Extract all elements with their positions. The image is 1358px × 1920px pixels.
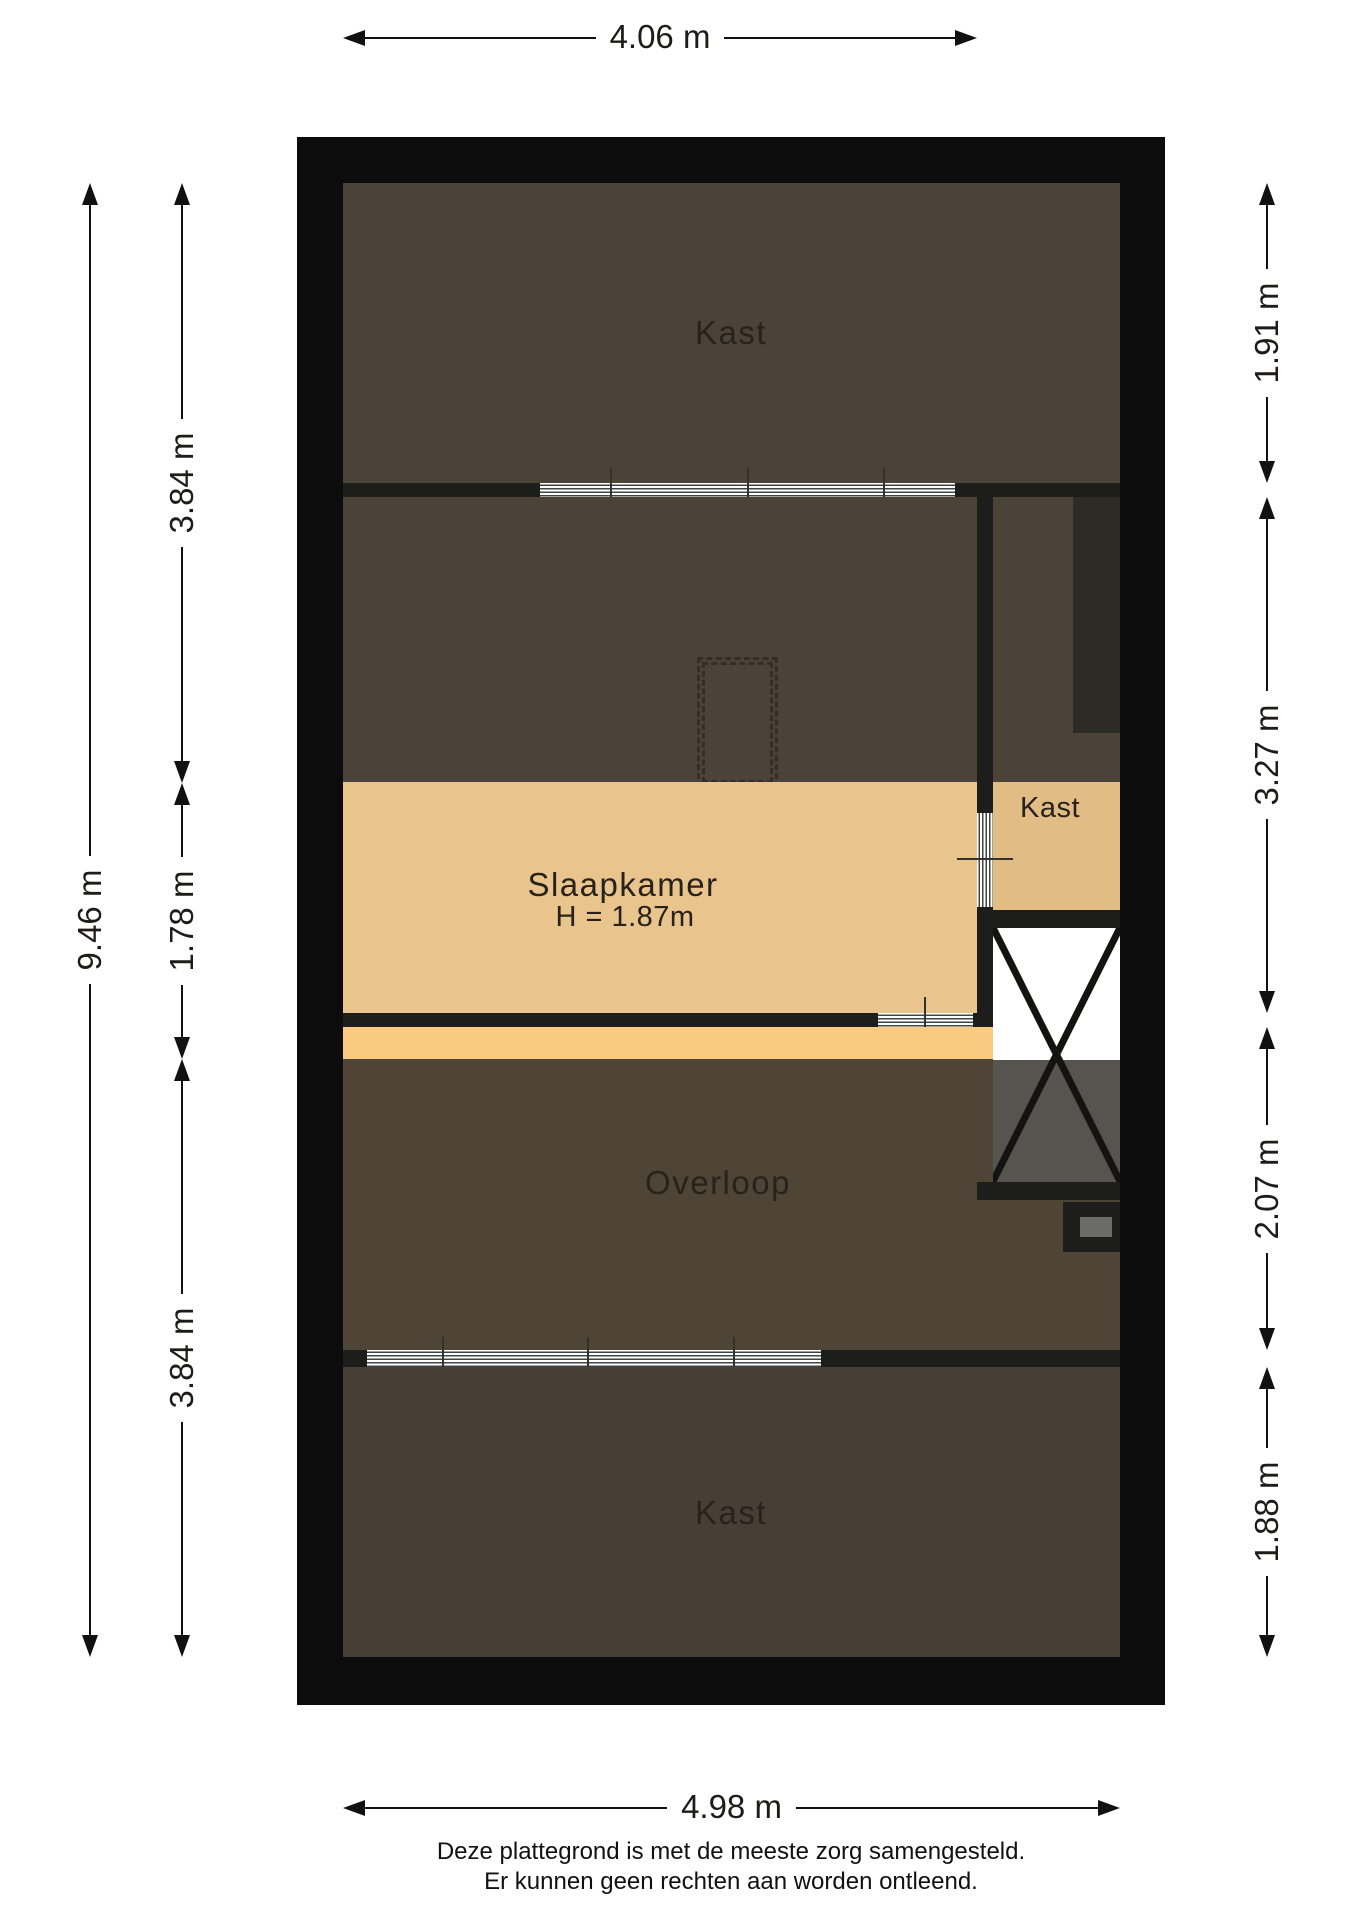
door-opening: [977, 813, 993, 907]
arrowhead-right-icon: [955, 30, 977, 46]
dim-left-inner-2-label: 1.78 m: [163, 871, 201, 972]
kast-bottom-label: Kast: [631, 1494, 831, 1532]
wall-slaapkamer-bottom: [343, 1013, 878, 1027]
dim-right-2-label: 3.27 m: [1248, 705, 1286, 806]
arrowhead-down-icon: [82, 1635, 98, 1657]
overloop-label: Overloop: [568, 1164, 868, 1202]
dormer-dashed-outline: [697, 657, 778, 788]
wall-slaapkamer-bottom-end: [973, 1013, 993, 1027]
arrowhead-right-icon: [1098, 1800, 1120, 1816]
door-tick: [957, 858, 1013, 860]
dim-left-inner-3-label: 3.84 m: [163, 1308, 201, 1409]
arrowhead-left-icon: [343, 30, 365, 46]
floorplan-canvas: Kast Slaapkamer H = 1.87m Kast Overloop …: [0, 0, 1358, 1920]
dim-top: 4.06 m: [343, 15, 977, 61]
window-symbol-bottom: [367, 1350, 821, 1367]
kast-right-label: Kast: [975, 792, 1125, 825]
dormer-dashed-outline-inner: [702, 662, 773, 783]
dim-left-inner-2: 1.78 m: [174, 783, 190, 1059]
arrowhead-down-icon: [174, 1635, 190, 1657]
stair-void-box: [993, 928, 1120, 1182]
dim-right-1: 1.91 m: [1259, 183, 1275, 483]
dim-left-outer-label: 9.46 m: [71, 870, 109, 971]
arrowhead-down-icon: [1259, 1328, 1275, 1350]
floor-strip-light: [343, 1027, 993, 1059]
arrowhead-down-icon: [1259, 991, 1275, 1013]
dim-left-outer: 9.46 m: [82, 183, 98, 1657]
stair-void-lower-grey: [993, 1060, 1120, 1182]
kast-top-label: Kast: [631, 314, 831, 352]
slaapkamer-label: Slaapkamer: [473, 866, 773, 904]
footer-disclaimer-line-1: Deze plattegrond is met de meeste zorg s…: [231, 1838, 1231, 1866]
dim-left-inner-3: 3.84 m: [174, 1059, 190, 1657]
dim-right-2: 3.27 m: [1259, 497, 1275, 1013]
arrowhead-down-icon: [174, 761, 190, 783]
wall-vertical-right: [977, 497, 993, 813]
arrowhead-down-icon: [174, 1037, 190, 1059]
roof-strip: [1073, 497, 1120, 733]
dim-right-1-label: 1.91 m: [1248, 283, 1286, 384]
arrowhead-left-icon: [343, 1800, 365, 1816]
slaapkamer-height-label: H = 1.87m: [475, 901, 775, 934]
dim-bottom: 4.98 m: [343, 1785, 1120, 1831]
dim-right-4: 1.88 m: [1259, 1367, 1275, 1657]
dim-right-4-label: 1.88 m: [1248, 1462, 1286, 1563]
wall-void-top: [977, 910, 1120, 928]
dim-right-3-label: 2.07 m: [1248, 1138, 1286, 1239]
wall-overloop-bottom-stub: [343, 1350, 367, 1367]
arrowhead-down-icon: [1259, 461, 1275, 483]
arrowhead-down-icon: [1259, 1635, 1275, 1657]
room-slaapkamer-upper: [343, 497, 977, 782]
footer-disclaimer-line-2: Er kunnen geen rechten aan worden ontlee…: [231, 1868, 1231, 1896]
chimney-shaft-inner: [1080, 1217, 1112, 1237]
wall-overloop-bottom: [821, 1350, 1120, 1367]
dim-bottom-label: 4.98 m: [681, 1788, 782, 1826]
wall-void-bottom: [977, 1182, 1120, 1200]
dim-left-inner-1-label: 3.84 m: [163, 433, 201, 534]
dim-top-label: 4.06 m: [610, 18, 711, 56]
dim-right-3: 2.07 m: [1259, 1027, 1275, 1350]
dim-left-inner-1: 3.84 m: [174, 183, 190, 783]
